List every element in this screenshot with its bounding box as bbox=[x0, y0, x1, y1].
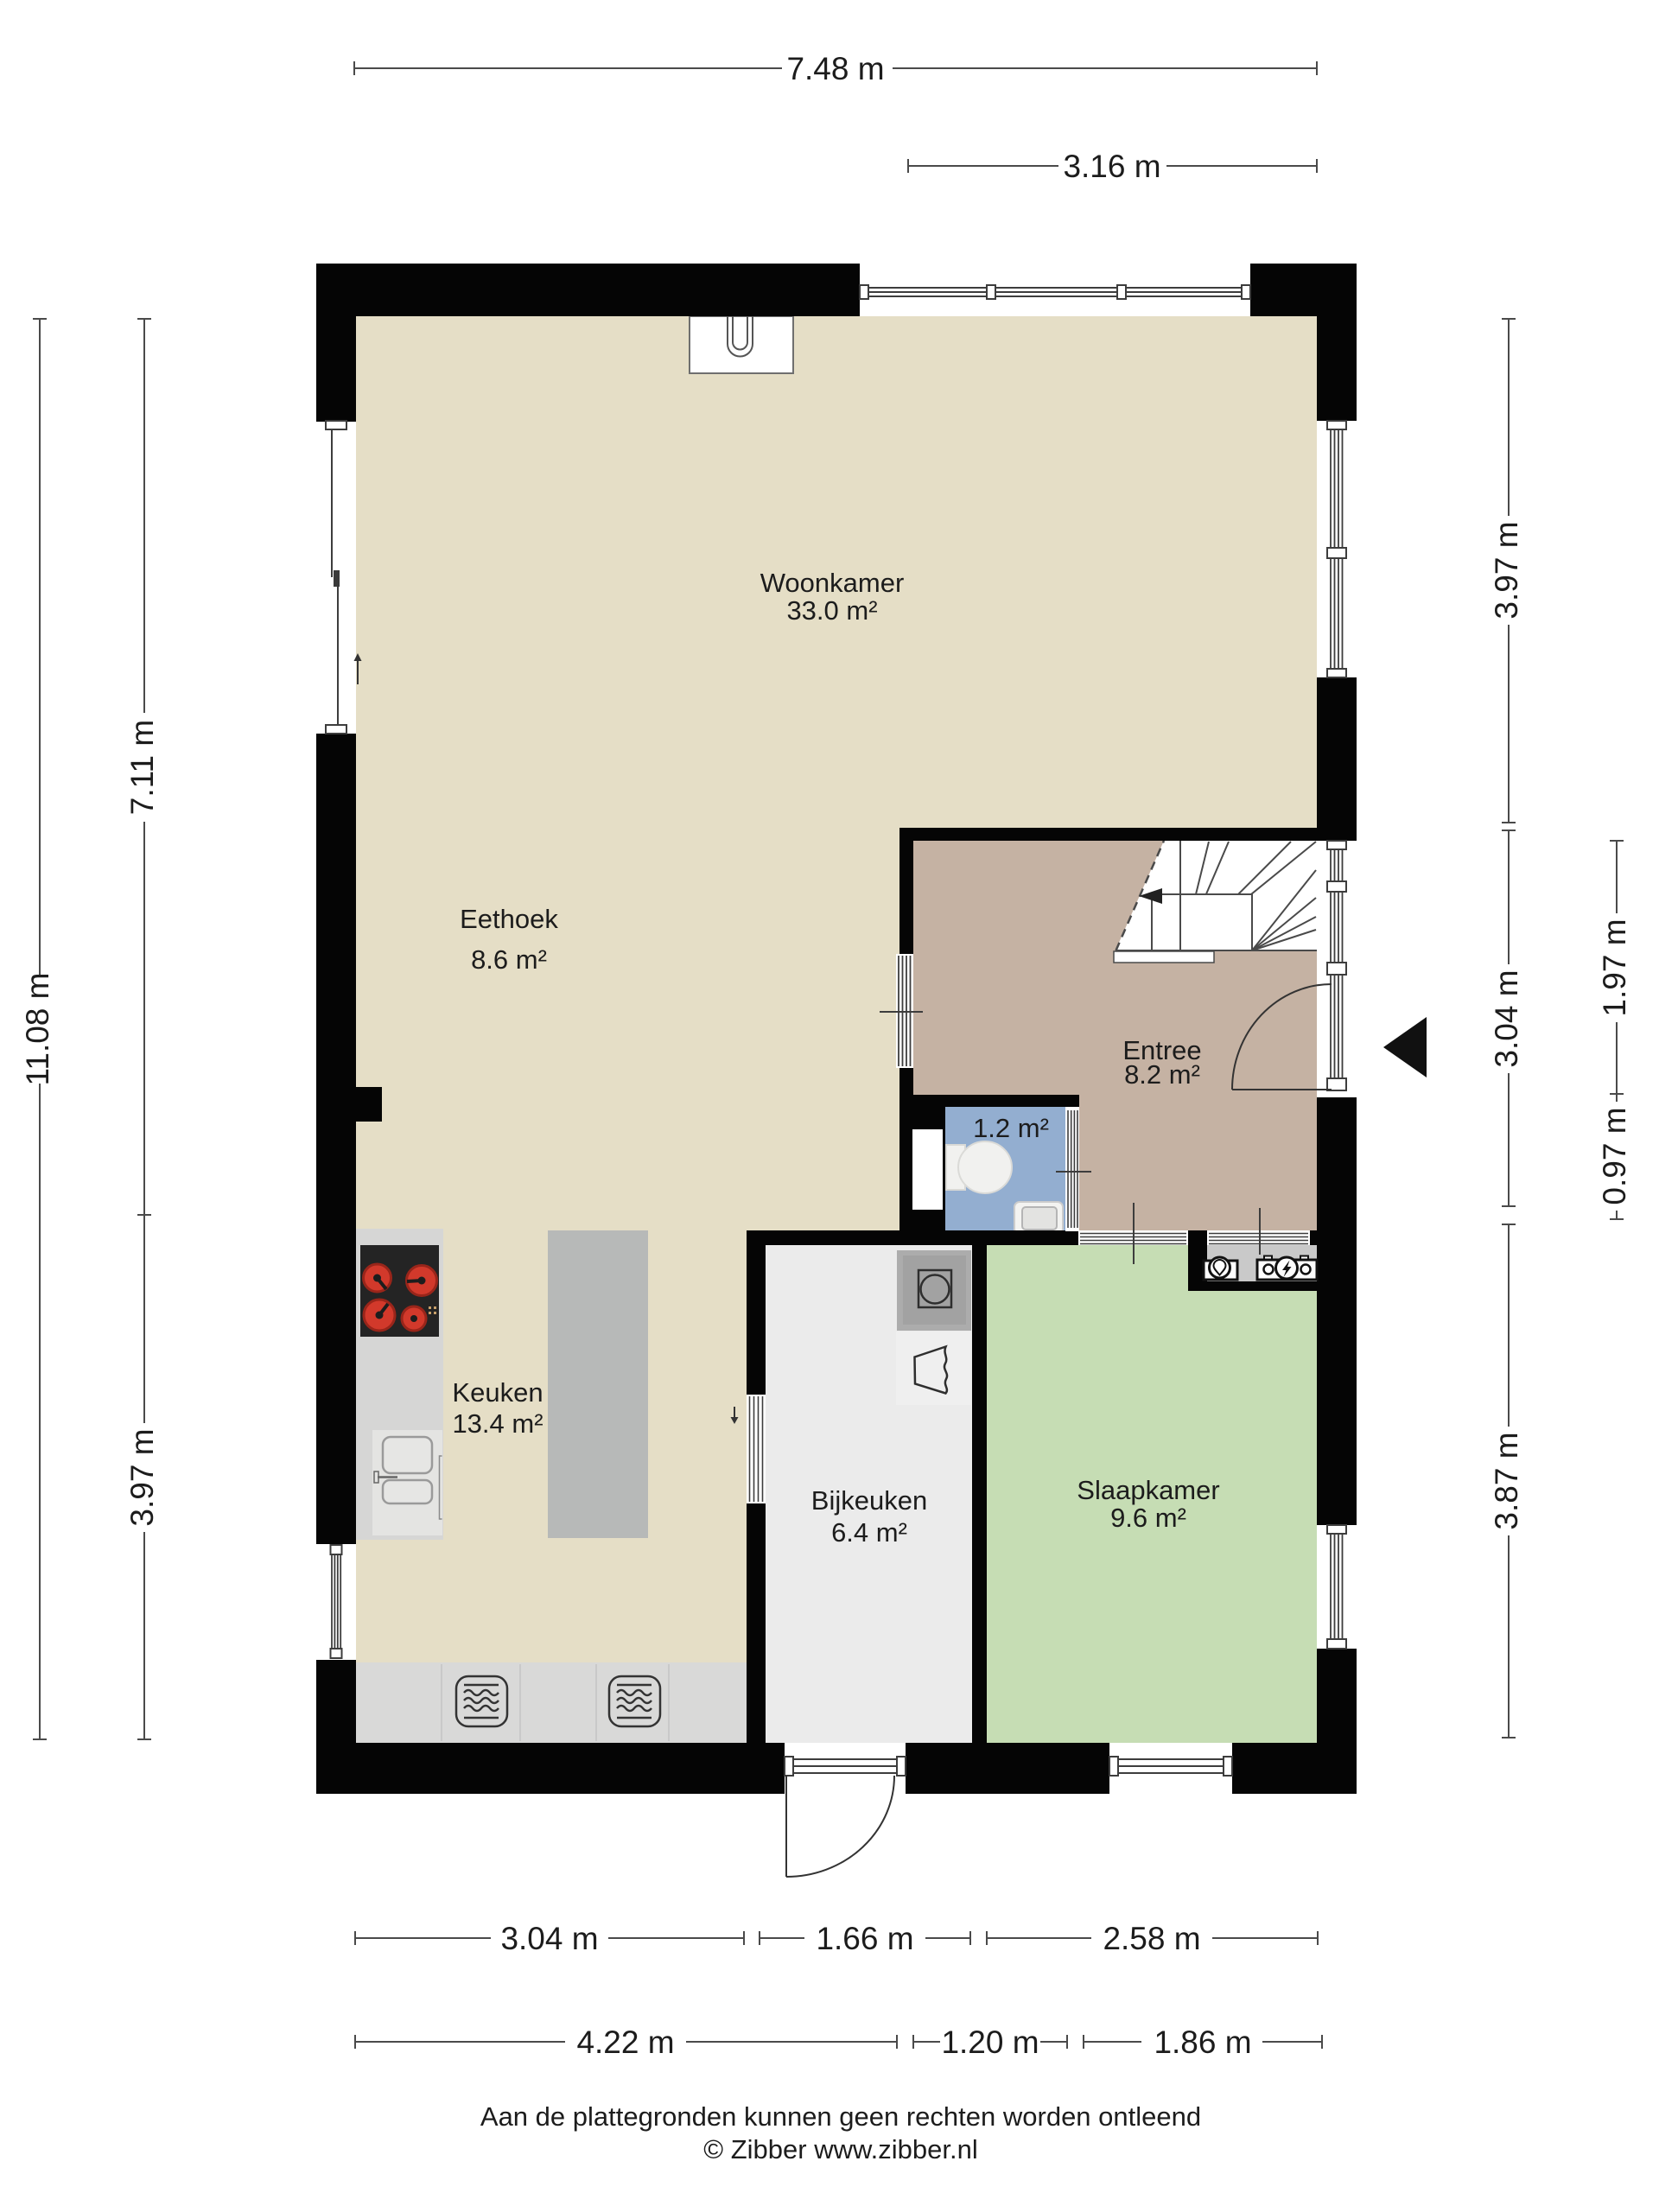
svg-text:8.2 m²: 8.2 m² bbox=[1124, 1059, 1200, 1090]
svg-text:3.04 m: 3.04 m bbox=[1489, 969, 1524, 1067]
svg-text:2.58 m: 2.58 m bbox=[1103, 1921, 1200, 1956]
svg-text:7.11 m: 7.11 m bbox=[124, 720, 160, 815]
svg-text:Eethoek: Eethoek bbox=[460, 904, 558, 934]
svg-text:1.66 m: 1.66 m bbox=[816, 1921, 913, 1956]
svg-text:8.6 m²: 8.6 m² bbox=[471, 944, 547, 975]
svg-text:1.97 m: 1.97 m bbox=[1597, 918, 1632, 1016]
svg-text:Keuken: Keuken bbox=[452, 1377, 543, 1408]
svg-text:1.20 m: 1.20 m bbox=[941, 2024, 1039, 2060]
svg-text:7.48 m: 7.48 m bbox=[786, 51, 884, 86]
svg-text:3.97 m: 3.97 m bbox=[124, 1428, 160, 1526]
svg-text:3.04 m: 3.04 m bbox=[500, 1921, 598, 1956]
svg-text:Woonkamer: Woonkamer bbox=[760, 568, 905, 598]
svg-text:3.16 m: 3.16 m bbox=[1063, 149, 1160, 184]
svg-text:1.86 m: 1.86 m bbox=[1154, 2024, 1251, 2060]
svg-text:13.4 m²: 13.4 m² bbox=[452, 1408, 543, 1439]
svg-text:1.2 m²: 1.2 m² bbox=[973, 1113, 1049, 1143]
svg-text:3.87 m: 3.87 m bbox=[1489, 1432, 1524, 1529]
svg-text:Slaapkamer: Slaapkamer bbox=[1077, 1475, 1219, 1505]
svg-text:4.22 m: 4.22 m bbox=[576, 2024, 674, 2060]
svg-text:© Zibber www.zibber.nl: © Zibber www.zibber.nl bbox=[703, 2134, 977, 2164]
svg-text:6.4 m²: 6.4 m² bbox=[831, 1517, 907, 1548]
svg-text:11.08 m: 11.08 m bbox=[20, 973, 55, 1086]
svg-text:3.97 m: 3.97 m bbox=[1489, 521, 1524, 619]
svg-text:Aan de plattegronden kunnen ge: Aan de plattegronden kunnen geen rechten… bbox=[480, 2101, 1201, 2132]
svg-text:0.97 m: 0.97 m bbox=[1597, 1107, 1632, 1205]
svg-text:33.0 m²: 33.0 m² bbox=[786, 595, 877, 626]
svg-text:9.6 m²: 9.6 m² bbox=[1110, 1503, 1186, 1533]
svg-text:Bijkeuken: Bijkeuken bbox=[811, 1485, 927, 1516]
